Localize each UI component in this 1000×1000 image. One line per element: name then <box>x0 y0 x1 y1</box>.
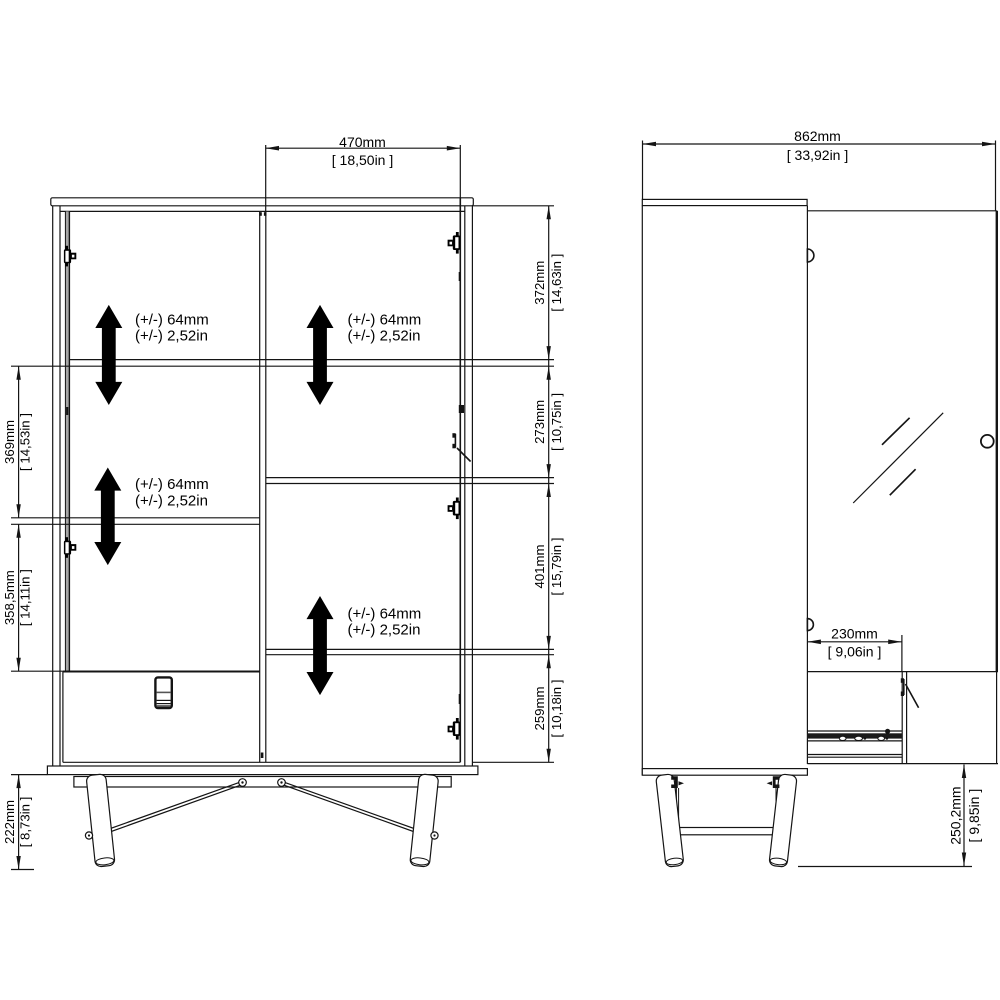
svg-text:[ 33,92in ]: [ 33,92in ] <box>787 147 849 163</box>
svg-text:401mm: 401mm <box>532 545 547 589</box>
svg-text:862mm: 862mm <box>794 128 841 144</box>
svg-text:259mm: 259mm <box>532 687 547 731</box>
svg-text:358,5mm: 358,5mm <box>2 570 17 625</box>
svg-text:[ 10,75in ]: [ 10,75in ] <box>549 393 564 451</box>
svg-text:[ 8,73in ]: [ 8,73in ] <box>18 797 33 848</box>
svg-text:(+/-) 64mm: (+/-) 64mm <box>135 476 209 493</box>
svg-text:(+/-) 64mm: (+/-) 64mm <box>135 311 209 328</box>
svg-text:[ 14,63in ]: [ 14,63in ] <box>549 254 564 312</box>
svg-text:273mm: 273mm <box>532 400 547 444</box>
svg-text:369mm: 369mm <box>2 420 17 464</box>
svg-text:(+/-) 64mm: (+/-) 64mm <box>348 311 422 328</box>
svg-text:[ 14,53in ]: [ 14,53in ] <box>18 413 33 471</box>
svg-text:470mm: 470mm <box>339 134 386 150</box>
svg-text:222mm: 222mm <box>2 800 17 844</box>
svg-text:372mm: 372mm <box>532 261 547 305</box>
svg-text:[ 18,50in ]: [ 18,50in ] <box>332 152 394 168</box>
svg-text:[ 9,85in ]: [ 9,85in ] <box>966 789 982 843</box>
svg-text:[ 10,18in ]: [ 10,18in ] <box>549 680 564 738</box>
svg-text:[ 14,11in ]: [ 14,11in ] <box>18 569 33 626</box>
svg-text:(+/-) 2,52in: (+/-) 2,52in <box>348 328 421 345</box>
svg-text:[ 9,06in ]: [ 9,06in ] <box>828 644 882 660</box>
svg-text:250,2mm: 250,2mm <box>947 786 963 844</box>
svg-text:(+/-) 2,52in: (+/-) 2,52in <box>135 328 208 345</box>
svg-text:(+/-) 64mm: (+/-) 64mm <box>348 605 422 622</box>
svg-text:(+/-) 2,52in: (+/-) 2,52in <box>348 622 421 639</box>
svg-text:[ 15,79in ]: [ 15,79in ] <box>549 538 564 596</box>
svg-text:(+/-) 2,52in: (+/-) 2,52in <box>135 493 208 510</box>
svg-text:230mm: 230mm <box>831 625 878 641</box>
